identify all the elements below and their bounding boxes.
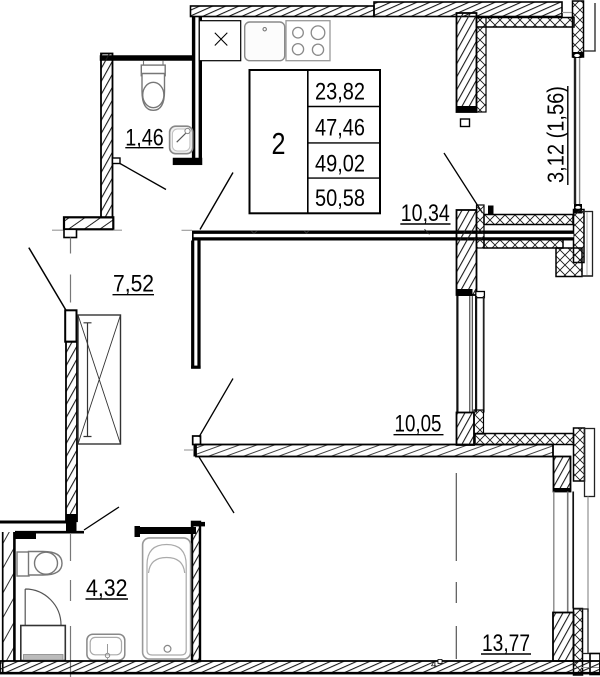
- svg-text:2: 2: [272, 126, 286, 161]
- svg-text:4: 4: [431, 660, 437, 671]
- svg-text:10,34: 10,34: [401, 200, 450, 227]
- svg-text:3,12 (1,56): 3,12 (1,56): [543, 86, 569, 183]
- svg-text:49,02: 49,02: [315, 151, 365, 178]
- svg-text:47,46: 47,46: [315, 115, 365, 142]
- svg-text:7,52: 7,52: [113, 271, 154, 298]
- svg-text:13,77: 13,77: [482, 630, 530, 657]
- svg-text:10,05: 10,05: [395, 411, 442, 438]
- svg-text:4,32: 4,32: [86, 575, 128, 602]
- svg-text:23,82: 23,82: [315, 79, 365, 106]
- svg-text:50,58: 50,58: [315, 185, 365, 212]
